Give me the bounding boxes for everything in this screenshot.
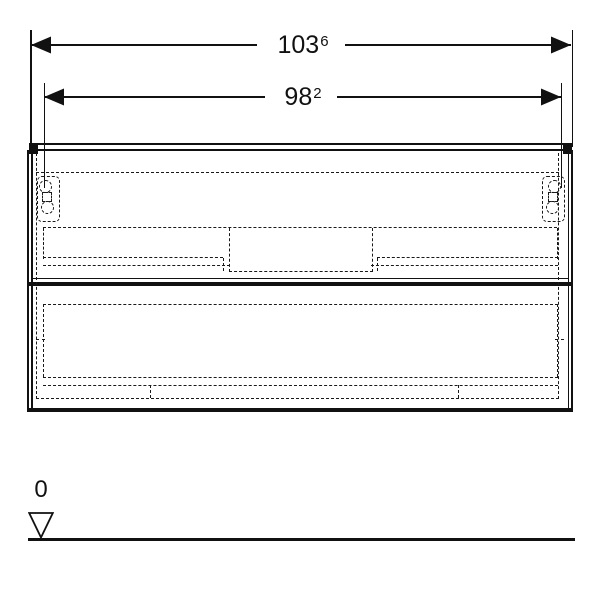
runner-mark-left [36, 339, 45, 340]
fixing-clip-right-circle-bottom [546, 201, 559, 214]
siphon-cutout-bottom-edge [229, 271, 373, 272]
cabinet-bottom-edge [27, 408, 573, 413]
dim-inner-line-left-segment [45, 96, 265, 98]
fixing-clip-left-square [42, 192, 52, 202]
drawer-divider-thin [33, 278, 568, 279]
right-drawer-box-right-edge [557, 228, 558, 259]
arrowhead-left-icon [31, 36, 51, 54]
top-drawer-box-top-line [43, 227, 557, 228]
right-drawer-box-notch [377, 258, 378, 271]
top-drawer-hidden-top-line [36, 172, 559, 173]
dimension-value: 98 [284, 83, 312, 111]
base-tick-left [150, 385, 151, 398]
bottom-hidden-base-line [36, 398, 559, 399]
left-drawer-box-notch [223, 258, 224, 271]
cabinet-top-edge-inner [33, 149, 568, 151]
bottom-drawer-panel-line [43, 385, 558, 386]
bottom-drawer-box-bottom [43, 377, 558, 378]
dimension-superscript: 2 [313, 85, 321, 102]
dimension-label-overall-width: 1036 [269, 27, 336, 60]
base-tick-right [458, 385, 459, 398]
right-drawer-box-bottom-line-2 [371, 265, 558, 266]
dimension-value: 103 [277, 31, 319, 59]
dim-overall-line-left-segment [32, 44, 257, 46]
dim-inner-line-right-segment [337, 96, 561, 98]
dim-overall-line-right-segment [345, 44, 571, 46]
technical-drawing-canvas: 1036 982 [0, 0, 600, 600]
bottom-drawer-box-top [43, 304, 558, 305]
fixing-clip-left-circle-bottom [41, 201, 54, 214]
dimension-label-inner-width: 982 [276, 79, 329, 112]
floor-line [28, 538, 575, 541]
arrowhead-right-icon [541, 88, 561, 106]
fixing-clip-right-square [548, 192, 558, 202]
left-drawer-box-bottom-line-2 [43, 265, 230, 266]
bottom-drawer-box-right [557, 304, 558, 377]
dim-overall-extension-line-right [572, 30, 574, 147]
cabinet-top-edge-outer [33, 143, 568, 145]
drawer-divider-thick [29, 282, 571, 287]
left-drawer-box-bottom-line-1 [43, 257, 223, 258]
left-drawer-box-left-edge [43, 228, 44, 259]
bottom-drawer-box-left [43, 304, 44, 377]
datum-level-triangle-icon [28, 512, 54, 539]
arrowhead-right-icon [551, 36, 571, 54]
dimension-superscript: 6 [320, 33, 328, 50]
datum-zero-label: 0 [34, 477, 47, 503]
right-drawer-box-bottom-line-1 [377, 257, 558, 258]
cabinet-right-edge-outer [571, 150, 573, 412]
arrowhead-left-icon [44, 88, 64, 106]
runner-mark-right [555, 339, 564, 340]
